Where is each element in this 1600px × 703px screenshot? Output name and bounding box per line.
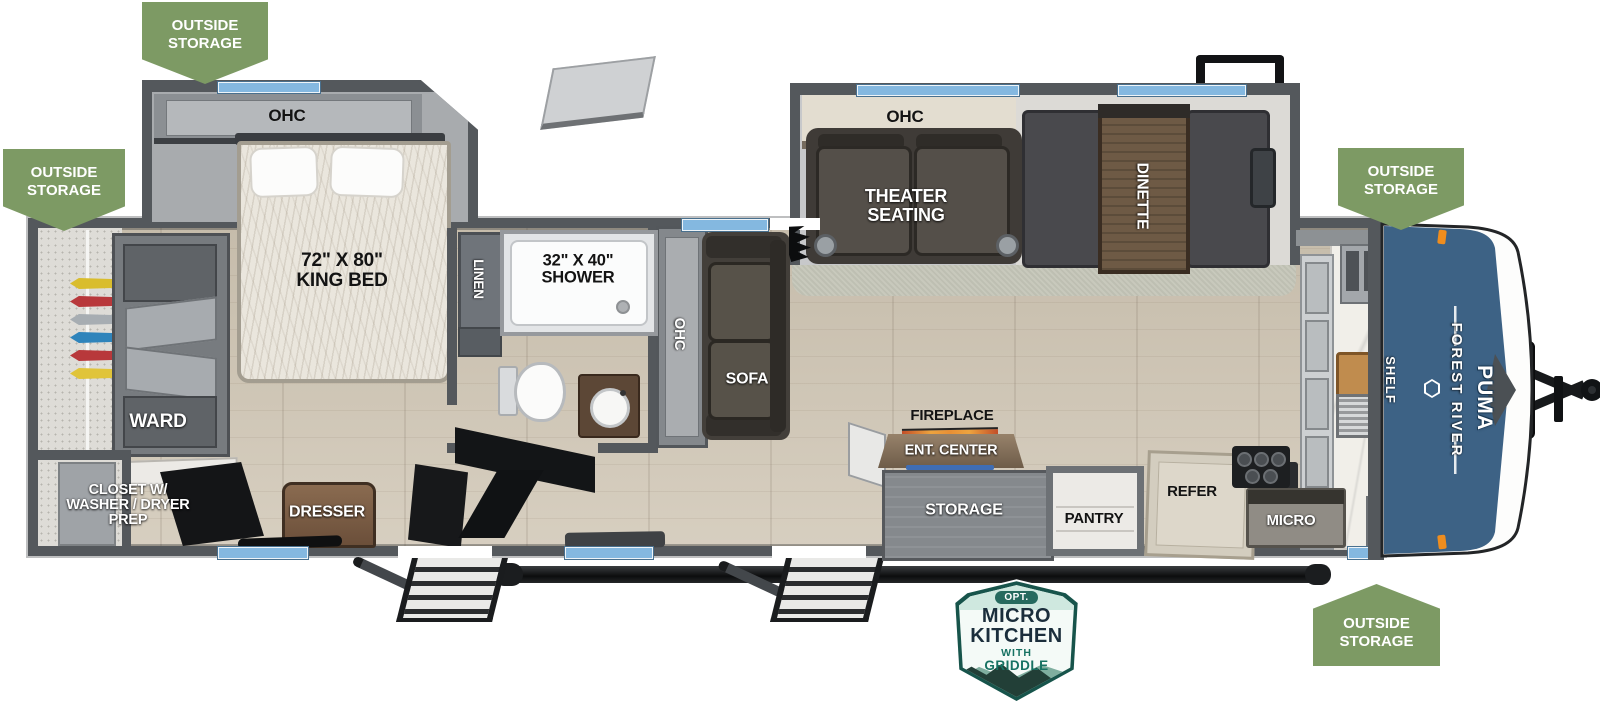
shower-label: 32" X 40" SHOWER [541,253,614,288]
main-wall-window [218,547,308,559]
dinette-label: DINETTE [1133,162,1150,229]
awning-roller [497,566,1327,583]
main-wall-window [565,547,653,559]
cupholder-icon [996,234,1019,257]
entry-door-opening [398,546,492,558]
ent-center-label: ENT. CENTER [905,443,998,458]
entry-steps [396,558,508,622]
closet-label: CLOSET W/ WASHER / DRYER PREP [66,483,189,529]
living-slide-window [1118,85,1246,96]
dresser-label: DRESSER [289,505,365,522]
linen-cabinet-base [458,327,502,357]
closet-wall-horizontal [38,450,130,460]
sofa-label: SOFA [726,372,769,389]
hall-ohc-label: OHC [671,318,687,351]
shelf-label: SHELF [1383,356,1397,404]
entry-steps [770,558,884,622]
ward-label: WARD [129,412,186,432]
bath-wall-left [447,228,457,405]
micro-kitchen-badge: OPT. MICRO KITCHEN WITH GRIDDLE [948,578,1085,703]
micro-label: MICRO [1267,513,1316,529]
bedroom-slide-window [218,82,320,93]
puma-wordmark: PUMA [1473,365,1495,431]
forest-river-wordmark: FOREST RIVER [1448,323,1464,458]
main-wall-window [682,219,768,231]
bedroom-ohc-label: OHC [268,107,305,125]
refer-label: REFER [1167,484,1217,500]
entry-door-opening [772,546,866,558]
theater-seating-label: THEATER SEATING [865,187,947,225]
awning-end-cap-right [1305,564,1331,585]
linen-label: LINEN [471,259,485,299]
cupholder-icon [814,234,837,257]
living-ohc-label: OHC [886,108,923,126]
led-light-bar [906,465,994,470]
living-slide-window [857,85,1019,96]
open-entry-door-panel [540,56,656,130]
bath-faucet [620,390,626,396]
living-slideout [790,83,1300,265]
storage-label: STORAGE [925,503,1002,520]
cooktop [1232,446,1290,488]
sofa [702,232,790,440]
outside-storage-badge: OUTSIDESTORAGE [142,2,268,84]
pillow [329,146,405,199]
pillow [249,146,319,198]
fireplace-label: FIREPLACE [910,408,993,424]
outside-storage-badge: OUTSIDESTORAGE [1313,584,1440,666]
king-bed-label: 72" X 80" KING BED [296,251,387,291]
pantry-label: PANTRY [1065,511,1124,527]
floorplan-canvas: OHC 72" X 80" KING BED WARD CLOSET W/ WA… [0,0,1600,703]
badge-opt-pill: OPT. [995,591,1037,604]
